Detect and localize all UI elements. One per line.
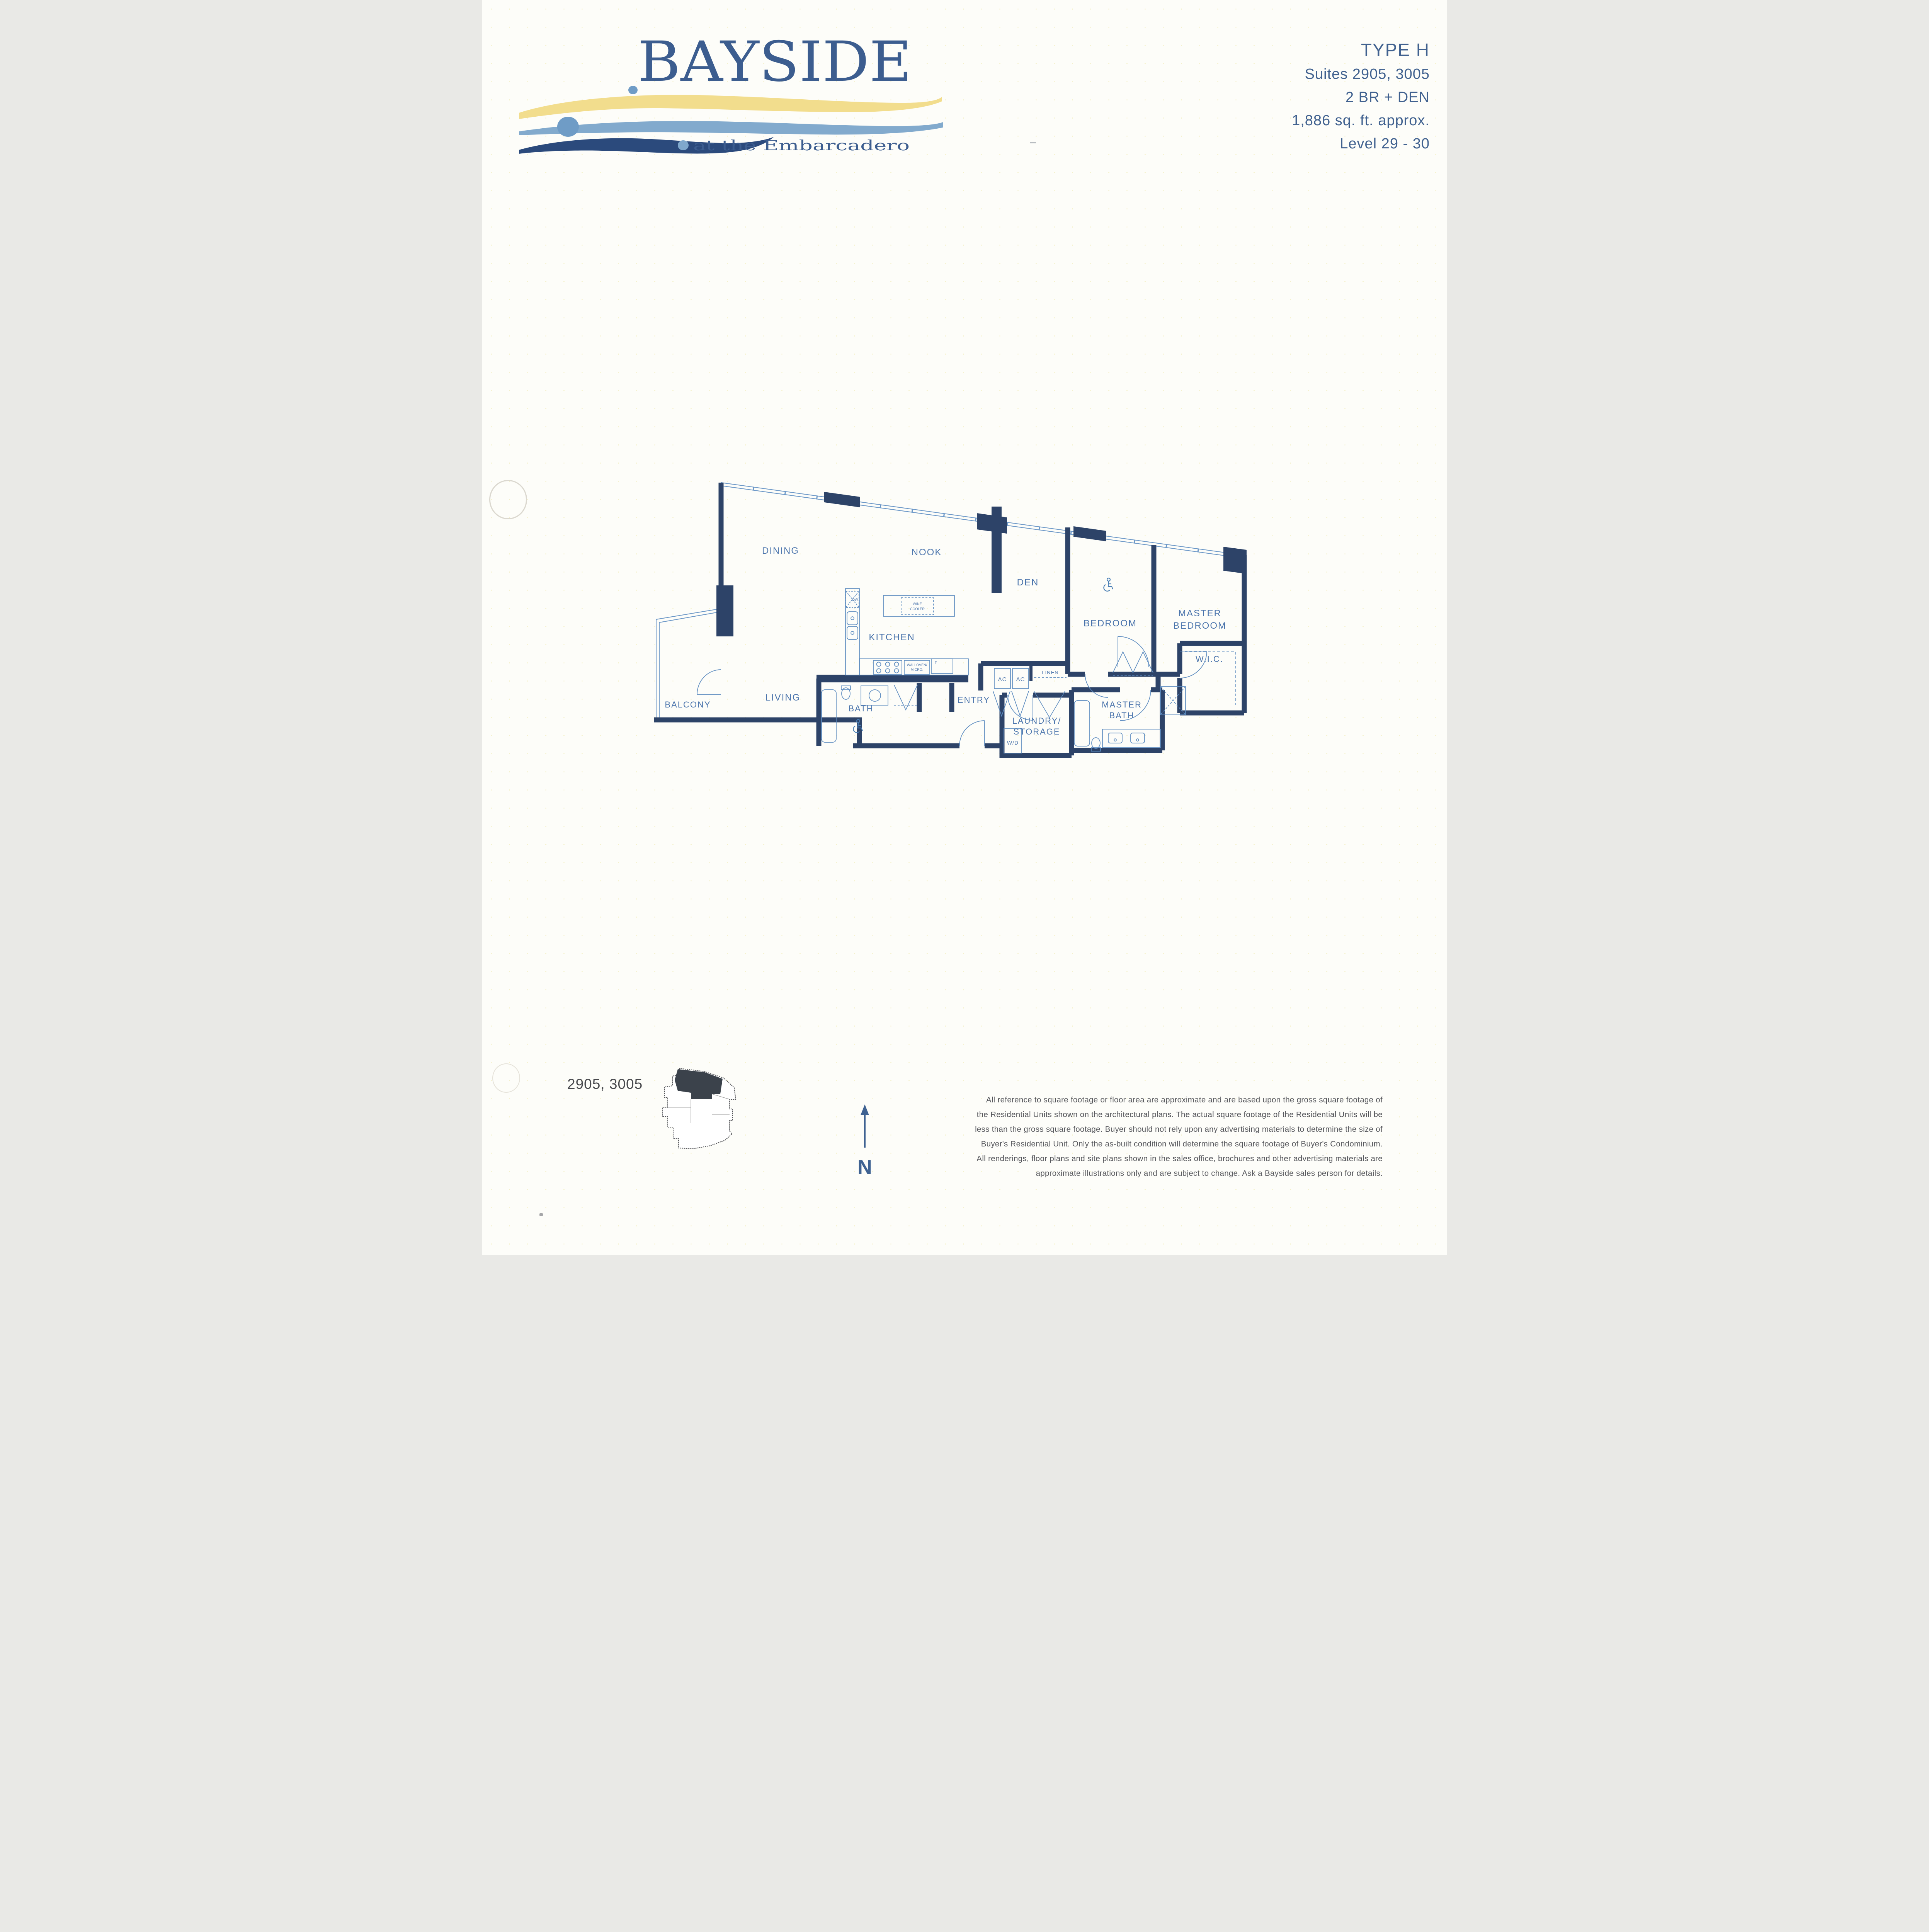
logo-tagline: at the Embarcadero (693, 138, 910, 154)
room-label-bedroom: BEDROOM (1084, 618, 1137, 629)
unit-header: TYPE H Suites 2905, 3005 2 BR + DEN 1,88… (1292, 37, 1430, 155)
scan-artifact-circle (492, 1063, 520, 1093)
bayside-logo: BAYSIDE at the Embarcadero (513, 15, 958, 182)
room-label-dining: DINING (762, 546, 799, 556)
disclaimer-line: less than the gross square footage. Buye… (873, 1122, 1383, 1137)
appliance-label-wine-2: COOLER (910, 607, 925, 611)
room-label-laundry-1: LAUNDRY/ (1012, 716, 1061, 726)
closet-label-ac2: AC (1016, 676, 1025, 683)
room-label-master-bedroom-2: BEDROOM (1173, 621, 1226, 631)
room-labels: DINING NOOK DEN BEDROOM MASTER BEDROOM B… (665, 546, 1226, 736)
logo-dot-large (557, 117, 579, 137)
logo-wordmark: BAYSIDE (638, 29, 912, 94)
key-plan-label: 2905, 3005 (567, 1076, 643, 1092)
wheelchair-icon (1104, 578, 1113, 591)
disclaimer: All reference to square footage or floor… (873, 1093, 1383, 1181)
walls (654, 483, 1244, 755)
hall-door-arc (1118, 636, 1149, 667)
key-plan-footprint (662, 1068, 736, 1149)
disclaimer-line: All reference to square footage or floor… (873, 1093, 1383, 1107)
wall-blocks (716, 492, 1247, 636)
scan-artifact-dash (1030, 142, 1036, 143)
disclaimer-line: approximate illustrations only and are s… (873, 1166, 1383, 1181)
compass: N (855, 1104, 874, 1178)
room-label-kitchen: KITCHEN (869, 632, 915, 643)
logo-dot-small (628, 86, 638, 94)
unit-suites: Suites 2905, 3005 (1292, 63, 1430, 86)
room-label-entry: ENTRY (958, 695, 990, 705)
appliance-label-oven-2: MICRO. (911, 668, 924, 672)
unit-area: 1,886 sq. ft. approx. (1292, 109, 1430, 132)
room-label-master-bath-2: BATH (1109, 711, 1134, 720)
floor-plan: DINING NOOK DEN BEDROOM MASTER BEDROOM B… (645, 458, 1247, 767)
appliance-label-fridge: F (935, 661, 937, 665)
balcony-door-arc (697, 670, 721, 694)
logo-wave-yellow (519, 95, 942, 119)
bedroom-door-arc (1085, 674, 1108, 697)
disclaimer-line: All renderings, floor plans and site pla… (873, 1151, 1383, 1166)
closet-label-linen: LINEN (1042, 670, 1058, 675)
room-label-den: DEN (1017, 577, 1039, 588)
room-label-balcony: BALCONY (665, 700, 711, 709)
room-label-master-bedroom-1: MASTER (1178, 608, 1221, 619)
disclaimer-line: the Residential Units shown on the archi… (873, 1107, 1383, 1122)
disclaimer-line: Buyer's Residential Unit. Only the as-bu… (873, 1137, 1383, 1151)
scan-artifact-speck (539, 1213, 543, 1216)
key-plan: 2905, 3005 (552, 1051, 760, 1159)
room-label-wic: W.I.C. (1196, 654, 1223, 664)
scan-artifact-circle (489, 480, 527, 519)
room-label-laundry-2: STORAGE (1013, 727, 1060, 736)
compass-north-label: N (857, 1156, 872, 1178)
appliance-label-oven-1: WALLOVEN/ (907, 663, 927, 667)
unit-type: TYPE H (1292, 37, 1430, 63)
logo-dot-tagline (678, 140, 689, 150)
north-arrow-icon (861, 1104, 869, 1148)
brochure-page: BAYSIDE at the Embarcadero TYPE H Suites… (482, 0, 1447, 1255)
appliance-label-wine-1: WINE (913, 602, 922, 606)
room-label-master-bath-1: MASTER (1102, 700, 1142, 709)
closet-label-wd: W/D (1007, 740, 1019, 746)
logo-wave-lightblue (519, 121, 943, 135)
unit-level: Level 29 - 30 (1292, 132, 1430, 155)
room-label-bath: BATH (848, 704, 873, 713)
entry-door-arc (959, 721, 985, 746)
closet-label-ac1: AC (998, 676, 1007, 683)
room-label-nook: NOOK (912, 547, 942, 558)
unit-config: 2 BR + DEN (1292, 86, 1430, 109)
room-label-living: LIVING (765, 692, 801, 703)
appliance-label-dw: DW (852, 598, 858, 602)
